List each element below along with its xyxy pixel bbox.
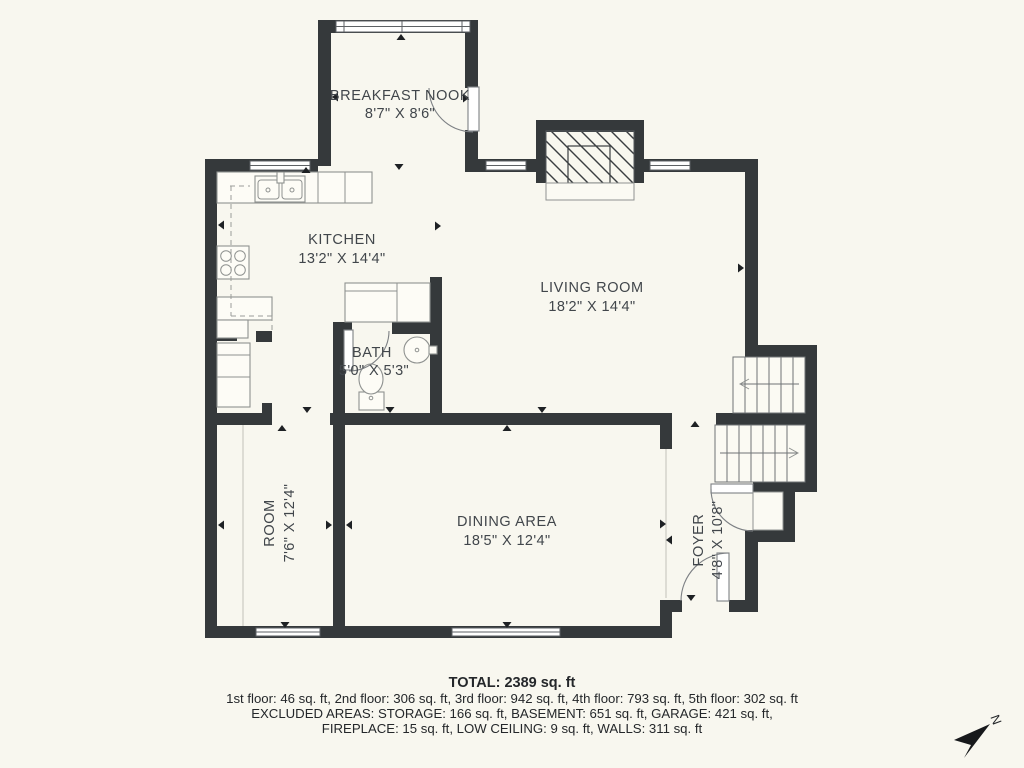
window-kitchen (250, 161, 310, 170)
window-room (256, 628, 320, 636)
label-foyer: FOYER (691, 514, 707, 567)
label-room: ROOM (262, 499, 278, 547)
dims-breakfast-nook: 8'7" X 8'6" (365, 106, 435, 122)
stove (217, 246, 249, 279)
kitchen-sink (255, 172, 305, 202)
cabinet-tall (217, 343, 250, 407)
counter-lower (217, 297, 272, 320)
fireplace (536, 120, 644, 200)
window-dining (452, 628, 560, 636)
label-breakfast-nook: BREAKFAST NOOK (330, 88, 470, 104)
excluded-areas-text-1: EXCLUDED AREAS: STORAGE: 166 sq. ft, BAS… (251, 706, 773, 721)
dims-living-room: 18'2" X 14'4" (548, 299, 635, 315)
page-background (0, 0, 1024, 768)
label-kitchen: KITCHEN (308, 232, 376, 248)
label-dining-area: DINING AREA (457, 514, 557, 530)
counter-peninsula (345, 283, 430, 322)
window-nook (336, 21, 470, 32)
dims-foyer: 4'8" X 10'8" (710, 501, 726, 580)
window-living-right (650, 161, 690, 170)
closet-interior (753, 492, 783, 530)
dims-bath: 5'0" X 5'3" (339, 363, 409, 379)
counter-lower-leg (217, 320, 248, 338)
total-area-text: TOTAL: 2389 sq. ft (449, 675, 576, 691)
dims-dining-area: 18'5" X 12'4" (463, 533, 550, 549)
window-living-left (486, 161, 526, 170)
floor-plan: BREAKFAST NOOK 8'7" X 8'6" KITCHEN 13'2"… (0, 0, 1024, 768)
label-living-room: LIVING ROOM (540, 280, 643, 296)
label-bath: BATH (352, 345, 392, 361)
excluded-areas-text-2: FIREPLACE: 15 sq. ft, LOW CEILING: 9 sq.… (322, 721, 703, 736)
dims-room: 7'6" X 12'4" (282, 484, 298, 563)
dims-kitchen: 13'2" X 14'4" (298, 251, 385, 267)
floors-text: 1st floor: 46 sq. ft, 2nd floor: 306 sq.… (226, 691, 798, 706)
